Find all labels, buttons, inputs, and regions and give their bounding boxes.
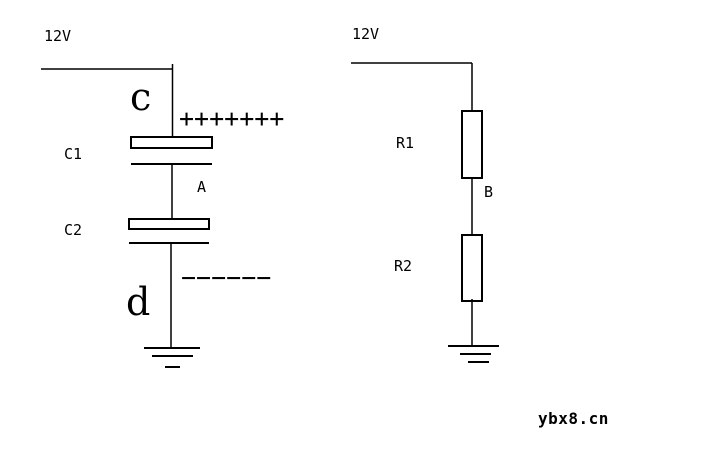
resistor1-label: R1 — [396, 136, 414, 151]
resistor1-body — [462, 111, 482, 178]
circuit-wires-svg — [0, 0, 720, 450]
capacitor1-label: C1 — [64, 147, 82, 162]
bottom-plate-point-label: d — [126, 283, 150, 321]
right-ground-icon — [448, 346, 499, 362]
capacitor2-top-plate — [129, 219, 209, 229]
top-plate-point-label: c — [130, 78, 151, 116]
resistor2-body — [462, 235, 482, 301]
negative-charges-row: −−−−−− — [181, 265, 271, 290]
watermark-text: ybx8.cn — [538, 411, 609, 427]
capacitor2-label: C2 — [64, 223, 82, 238]
right-supply-voltage-label: 12V — [352, 27, 379, 42]
left-midpoint-label: A — [197, 180, 206, 195]
left-ground-icon — [144, 348, 200, 367]
capacitor1-top-plate — [131, 137, 212, 148]
positive-charges-row: +++++++ — [179, 106, 284, 131]
right-midpoint-label: B — [484, 185, 493, 200]
circuit-diagram: 12V c +++++++ C1 A C2 −−−−−− d 12V R1 B … — [0, 0, 720, 450]
left-supply-voltage-label: 12V — [44, 29, 71, 44]
resistor2-label: R2 — [394, 259, 412, 274]
